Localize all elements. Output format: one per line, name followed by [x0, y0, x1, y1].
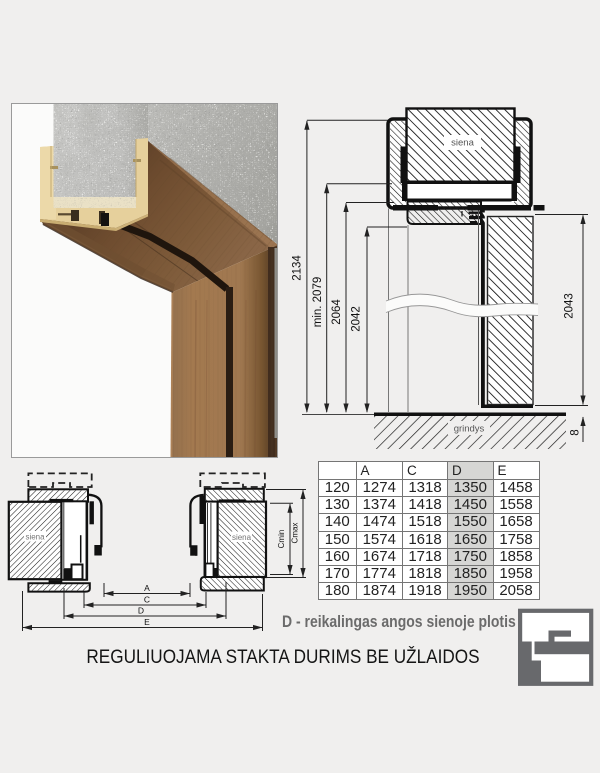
- svg-text:2134: 2134: [292, 255, 304, 281]
- svg-text:siena: siena: [232, 533, 252, 542]
- svg-text:C: C: [144, 595, 150, 605]
- svg-text:min. 2079: min. 2079: [312, 277, 324, 328]
- svg-text:siena: siena: [451, 138, 474, 149]
- svg-text:A: A: [144, 583, 150, 593]
- svg-text:2042: 2042: [351, 306, 363, 332]
- svg-text:Cmax: Cmax: [291, 523, 300, 544]
- svg-text:2043: 2043: [564, 293, 576, 319]
- svg-text:8: 8: [570, 429, 582, 435]
- svg-text:D: D: [138, 606, 144, 616]
- svg-text:siena: siena: [25, 533, 45, 542]
- svg-text:E: E: [144, 617, 150, 627]
- svg-text:2064: 2064: [331, 299, 343, 325]
- svg-text:Cmin: Cmin: [277, 530, 286, 549]
- svg-text:grindys: grindys: [454, 424, 485, 435]
